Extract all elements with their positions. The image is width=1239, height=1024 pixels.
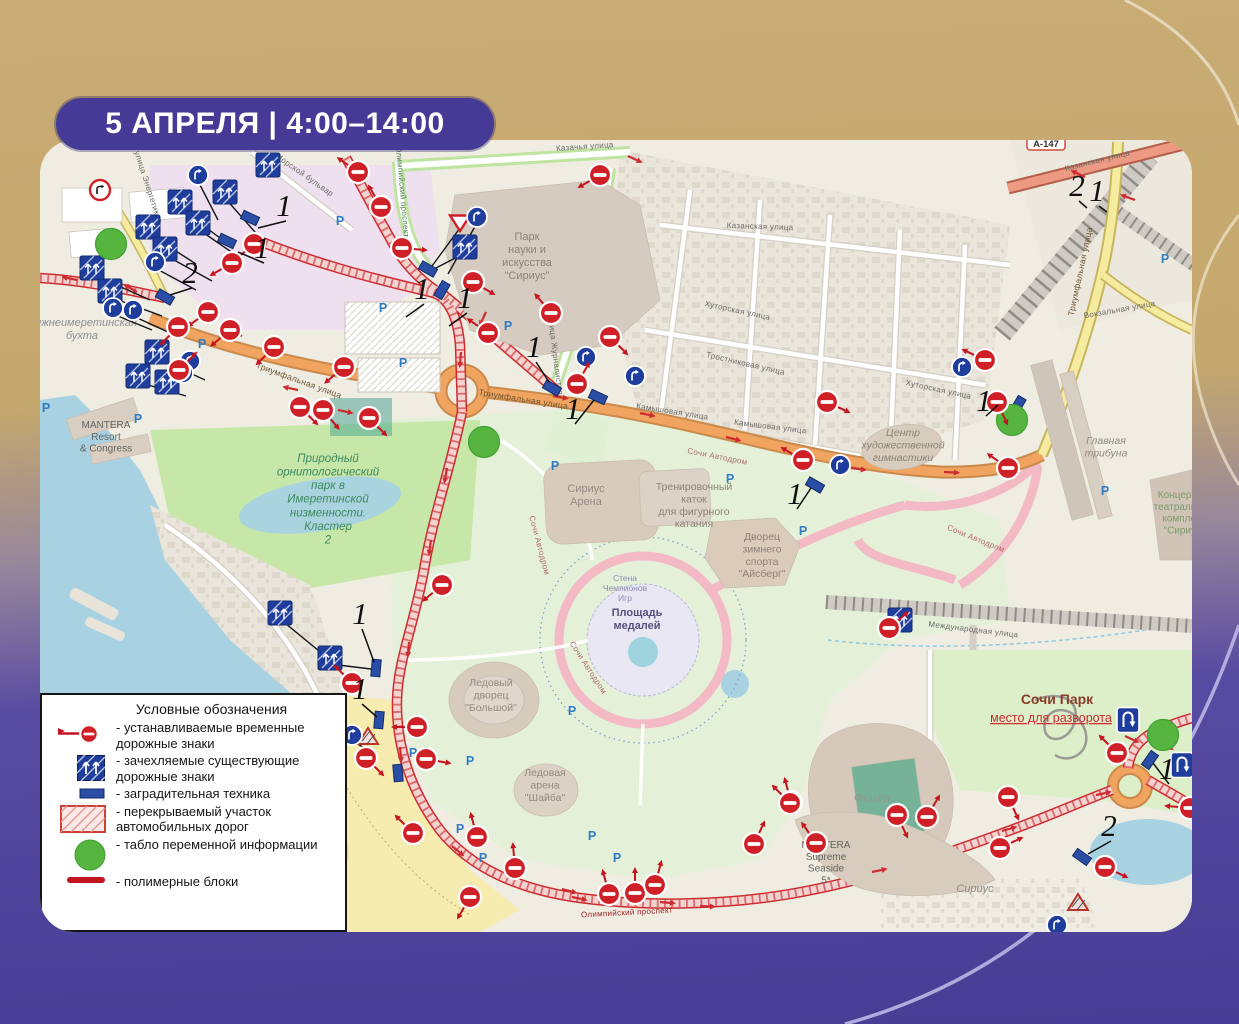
- legend-item-temporary-signs: - устанавливаемые временные дорожные зна…: [44, 720, 339, 751]
- barrier-icon: [371, 659, 381, 677]
- decor-arc: [1193, 215, 1239, 485]
- covered-sign-icon: [44, 753, 116, 783]
- place-label: Главнаятрибуна: [1085, 435, 1128, 459]
- info-board-icon: [469, 427, 500, 458]
- u-turn-sign-icon: [1117, 708, 1139, 733]
- mandatory-direction-sign-icon: [145, 252, 165, 272]
- legend-item-label: - полимерные блоки: [116, 874, 238, 890]
- place-label: место для разворота: [990, 711, 1112, 725]
- covered-sign-icon: [268, 601, 292, 625]
- plaza-pond: [628, 637, 658, 667]
- date-time-text: 5 АПРЕЛЯ | 4:00–14:00: [105, 107, 445, 141]
- parking-icon: P: [456, 822, 464, 836]
- place-label: Сочи Парк: [1021, 691, 1094, 707]
- page-background: { "badge": {"text": "5 АПРЕЛЯ | 4:00–14:…: [0, 0, 1239, 1024]
- temporary-sign-icon: [44, 724, 116, 744]
- place-label: Фишт: [854, 791, 890, 805]
- no-turn-sign-icon: [90, 180, 110, 200]
- legend-item-label: - табло переменной информации: [116, 837, 318, 853]
- road-shield-text: А-147: [1033, 140, 1059, 150]
- svg-text:1: 1: [787, 476, 803, 511]
- info-board-icon: [96, 229, 127, 260]
- svg-text:1: 1: [276, 188, 292, 223]
- svg-text:1: 1: [976, 383, 992, 418]
- covered-sign-icon: [126, 364, 150, 388]
- parking-icon: P: [198, 337, 206, 351]
- closed-road-icon: [44, 804, 116, 834]
- mandatory-direction-sign-icon: [625, 366, 645, 386]
- mandatory-direction-sign-icon: [123, 300, 143, 320]
- place-label: Ледоваяарена"Шайба": [524, 767, 565, 804]
- polymer-block-icon: [44, 874, 116, 886]
- info-board-icon: [44, 838, 116, 872]
- legend-item-label: - зачехляемые существующие дорожные знак…: [116, 753, 339, 784]
- date-time-badge: 5 АПРЕЛЯ | 4:00–14:00: [56, 98, 494, 150]
- place-label: Площадьмедалей: [612, 607, 663, 632]
- covered-sign-icon: [256, 153, 280, 177]
- covered-sign-icon: [186, 211, 210, 235]
- parking-icon: P: [42, 401, 50, 415]
- legend-title: Условные обозначения: [84, 701, 339, 717]
- mandatory-direction-sign-icon: [576, 347, 596, 367]
- barrier-icon: [44, 786, 116, 801]
- place-label: Сириус: [956, 883, 994, 895]
- road-closure-map[interactable]: PPPPPPPPPPPPPPPPPPPулица ЭнергетиковМорс…: [40, 140, 1192, 932]
- covered-sign-icon: [80, 256, 104, 280]
- mandatory-direction-sign-icon: [830, 455, 850, 475]
- legend-item-barrier: - заградительная техника: [44, 786, 339, 802]
- legend-item-polymer-blocks: - полимерные блоки: [44, 874, 339, 890]
- legend: Условные обозначения - устанавливаемые в…: [40, 693, 347, 932]
- svg-text:1: 1: [1159, 751, 1175, 786]
- mandatory-direction-sign-icon: [103, 298, 123, 318]
- svg-text:2: 2: [1101, 808, 1117, 843]
- covered-sign-icon: [168, 190, 192, 214]
- svg-text:1: 1: [352, 596, 368, 631]
- parking-icon: P: [134, 412, 142, 426]
- parking-icon: P: [551, 459, 559, 473]
- parking-icon: P: [1161, 252, 1169, 266]
- svg-text:1: 1: [526, 329, 542, 364]
- legend-item-label: - устанавливаемые временные дорожные зна…: [116, 720, 339, 751]
- place-label: СириусАрена: [567, 483, 605, 508]
- parking-icon: P: [379, 301, 387, 315]
- legend-item-closed-road: - перекрываемый участок автомобильных до…: [44, 804, 339, 835]
- mandatory-direction-sign-icon: [1047, 915, 1067, 932]
- svg-text:1: 1: [352, 671, 368, 706]
- closure-number: 1: [1089, 173, 1107, 212]
- parking-icon: P: [799, 524, 807, 538]
- svg-text:1: 1: [254, 230, 270, 265]
- mandatory-direction-sign-icon: [467, 207, 487, 227]
- pond: [721, 670, 749, 698]
- parking-icon: P: [1101, 484, 1109, 498]
- covered-sign-icon: [213, 180, 237, 204]
- closure-number: 2: [1069, 168, 1087, 208]
- svg-text:1: 1: [1089, 173, 1105, 208]
- parking-icon: P: [399, 356, 407, 370]
- covered-sign-icon: [145, 340, 169, 364]
- svg-text:1: 1: [565, 391, 581, 426]
- barrier-icon: [374, 711, 384, 729]
- parking-icon: P: [568, 704, 576, 718]
- parking-icon: P: [479, 851, 487, 865]
- info-board-icon: [1148, 720, 1179, 751]
- barrier-icon: [393, 764, 403, 782]
- parking-icon: P: [466, 754, 474, 768]
- svg-text:1: 1: [457, 280, 473, 315]
- svg-text:1: 1: [414, 271, 430, 306]
- covered-sign-icon: [136, 215, 160, 239]
- mandatory-direction-sign-icon: [952, 357, 972, 377]
- parking-icon: P: [588, 829, 596, 843]
- mandatory-direction-sign-icon: [188, 165, 208, 185]
- decor-arc: [1125, 0, 1239, 125]
- legend-item-info-board: - табло переменной информации: [44, 837, 339, 872]
- parking-icon: P: [613, 851, 621, 865]
- legend-item-label: - перекрываемый участок автомобильных до…: [116, 804, 339, 835]
- legend-item-covered-signs: - зачехляемые существующие дорожные знак…: [44, 753, 339, 784]
- svg-text:2: 2: [1069, 168, 1085, 203]
- parking-icon: P: [504, 319, 512, 333]
- covered-sign-icon: [453, 235, 477, 259]
- parking-icon: P: [336, 214, 344, 228]
- svg-text:2: 2: [182, 255, 198, 290]
- legend-item-label: - заградительная техника: [116, 786, 270, 802]
